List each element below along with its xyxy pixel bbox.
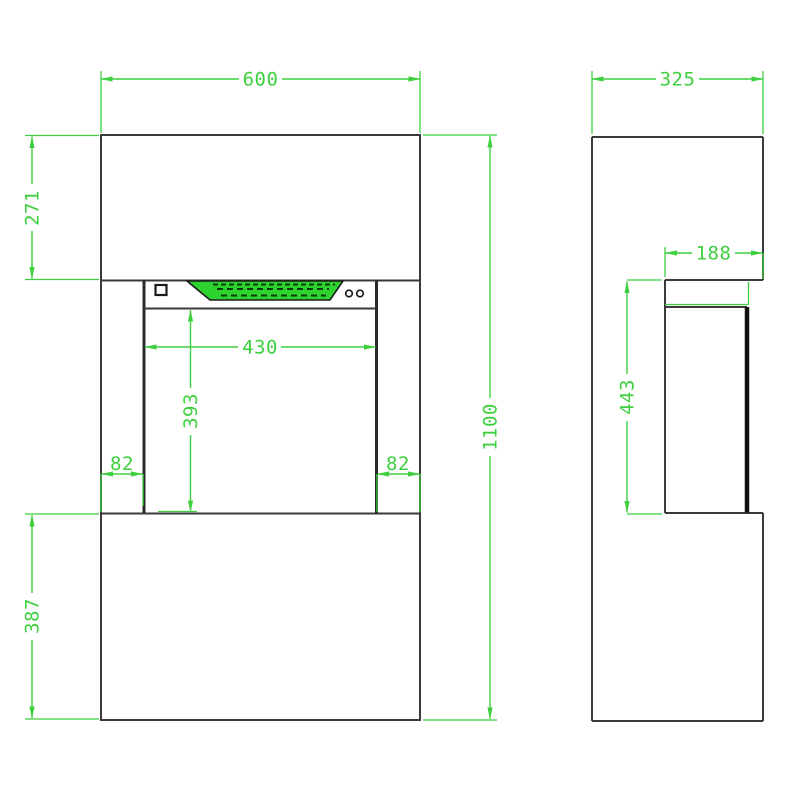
- dim-label-1100: 1100: [480, 403, 502, 451]
- indicator-light-icon: [357, 290, 364, 297]
- side-view: 325 188 443: [592, 69, 763, 722]
- front-outer-body: [101, 135, 420, 720]
- dim-front-bottom-height: 387: [22, 514, 100, 719]
- dim-front-total-height: 1100: [423, 135, 502, 720]
- dim-recess-depth: 188: [665, 243, 763, 280]
- dim-label-188: 188: [696, 243, 732, 265]
- dim-label-393: 393: [180, 393, 202, 429]
- technical-drawing-canvas: 600 271 1100 430 393: [0, 0, 800, 800]
- dim-label-387: 387: [22, 598, 44, 634]
- dim-recess-height: 443: [617, 280, 663, 514]
- dim-front-width: 600: [101, 69, 420, 134]
- dim-offset-right: 82: [377, 453, 420, 512]
- recess-inner-panel: [665, 282, 749, 513]
- dim-label-82-right: 82: [386, 453, 410, 475]
- dimension-drawing: 600 271 1100 430 393: [0, 0, 800, 800]
- dim-opening-width: 430: [145, 337, 376, 359]
- control-header: [144, 281, 376, 309]
- dim-label-443: 443: [617, 379, 639, 415]
- dim-label-600: 600: [243, 69, 279, 91]
- front-view: 600 271 1100 430 393: [22, 69, 502, 721]
- power-button-square-icon: [156, 285, 167, 295]
- dim-opening-height: 393: [158, 310, 202, 512]
- dim-offset-left: 82: [101, 453, 143, 512]
- dim-side-depth: 325: [592, 69, 763, 135]
- dim-front-top-height: 271: [22, 136, 100, 280]
- dim-label-430: 430: [242, 337, 278, 359]
- dim-label-271: 271: [22, 190, 44, 226]
- indicator-light-icon: [346, 290, 353, 297]
- dim-label-82-left: 82: [110, 453, 134, 475]
- dim-label-325: 325: [660, 69, 696, 91]
